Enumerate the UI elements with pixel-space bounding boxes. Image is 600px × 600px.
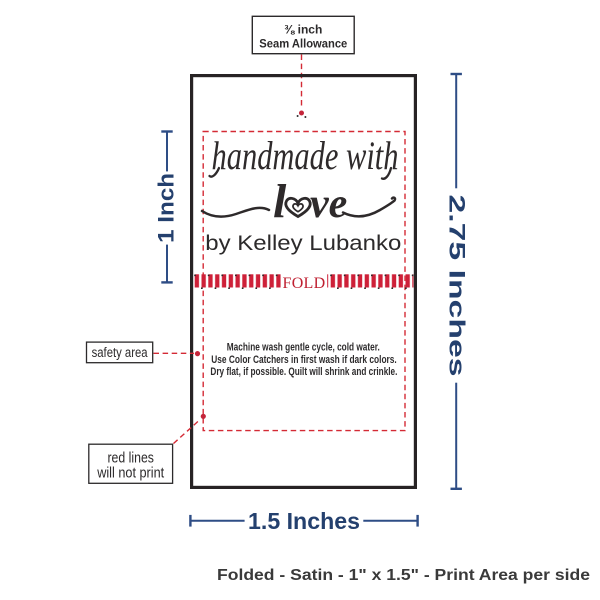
svg-text:ve: ve (310, 181, 347, 227)
svg-text:handmade with: handmade with (212, 133, 399, 178)
svg-text:will not print: will not print (96, 466, 164, 482)
svg-text:1 Inch: 1 Inch (154, 173, 179, 243)
svg-text:⅜ inch: ⅜ inch (284, 23, 322, 37)
svg-text:red lines: red lines (107, 451, 154, 467)
svg-text:Folded - Satin - 1" x 1.5" - P: Folded - Satin - 1" x 1.5" - Print Area … (217, 567, 590, 584)
svg-text:safety area: safety area (92, 345, 148, 360)
svg-text:Use Color Catchers in first wa: Use Color Catchers in first wash if dark… (211, 354, 397, 366)
svg-text:1.5 Inches: 1.5 Inches (248, 508, 360, 534)
svg-text:Dry flat, if possible. Quilt w: Dry flat, if possible. Quilt will shrink… (210, 366, 397, 378)
svg-text:by Kelley Lubanko: by Kelley Lubanko (205, 231, 401, 255)
svg-text:FOLD: FOLD (283, 275, 326, 292)
svg-text:Seam Allowance: Seam Allowance (259, 37, 347, 51)
svg-text:Machine wash gentle cycle, col: Machine wash gentle cycle, cold water. (227, 342, 380, 354)
svg-text:2.75 Inches: 2.75 Inches (445, 195, 470, 377)
